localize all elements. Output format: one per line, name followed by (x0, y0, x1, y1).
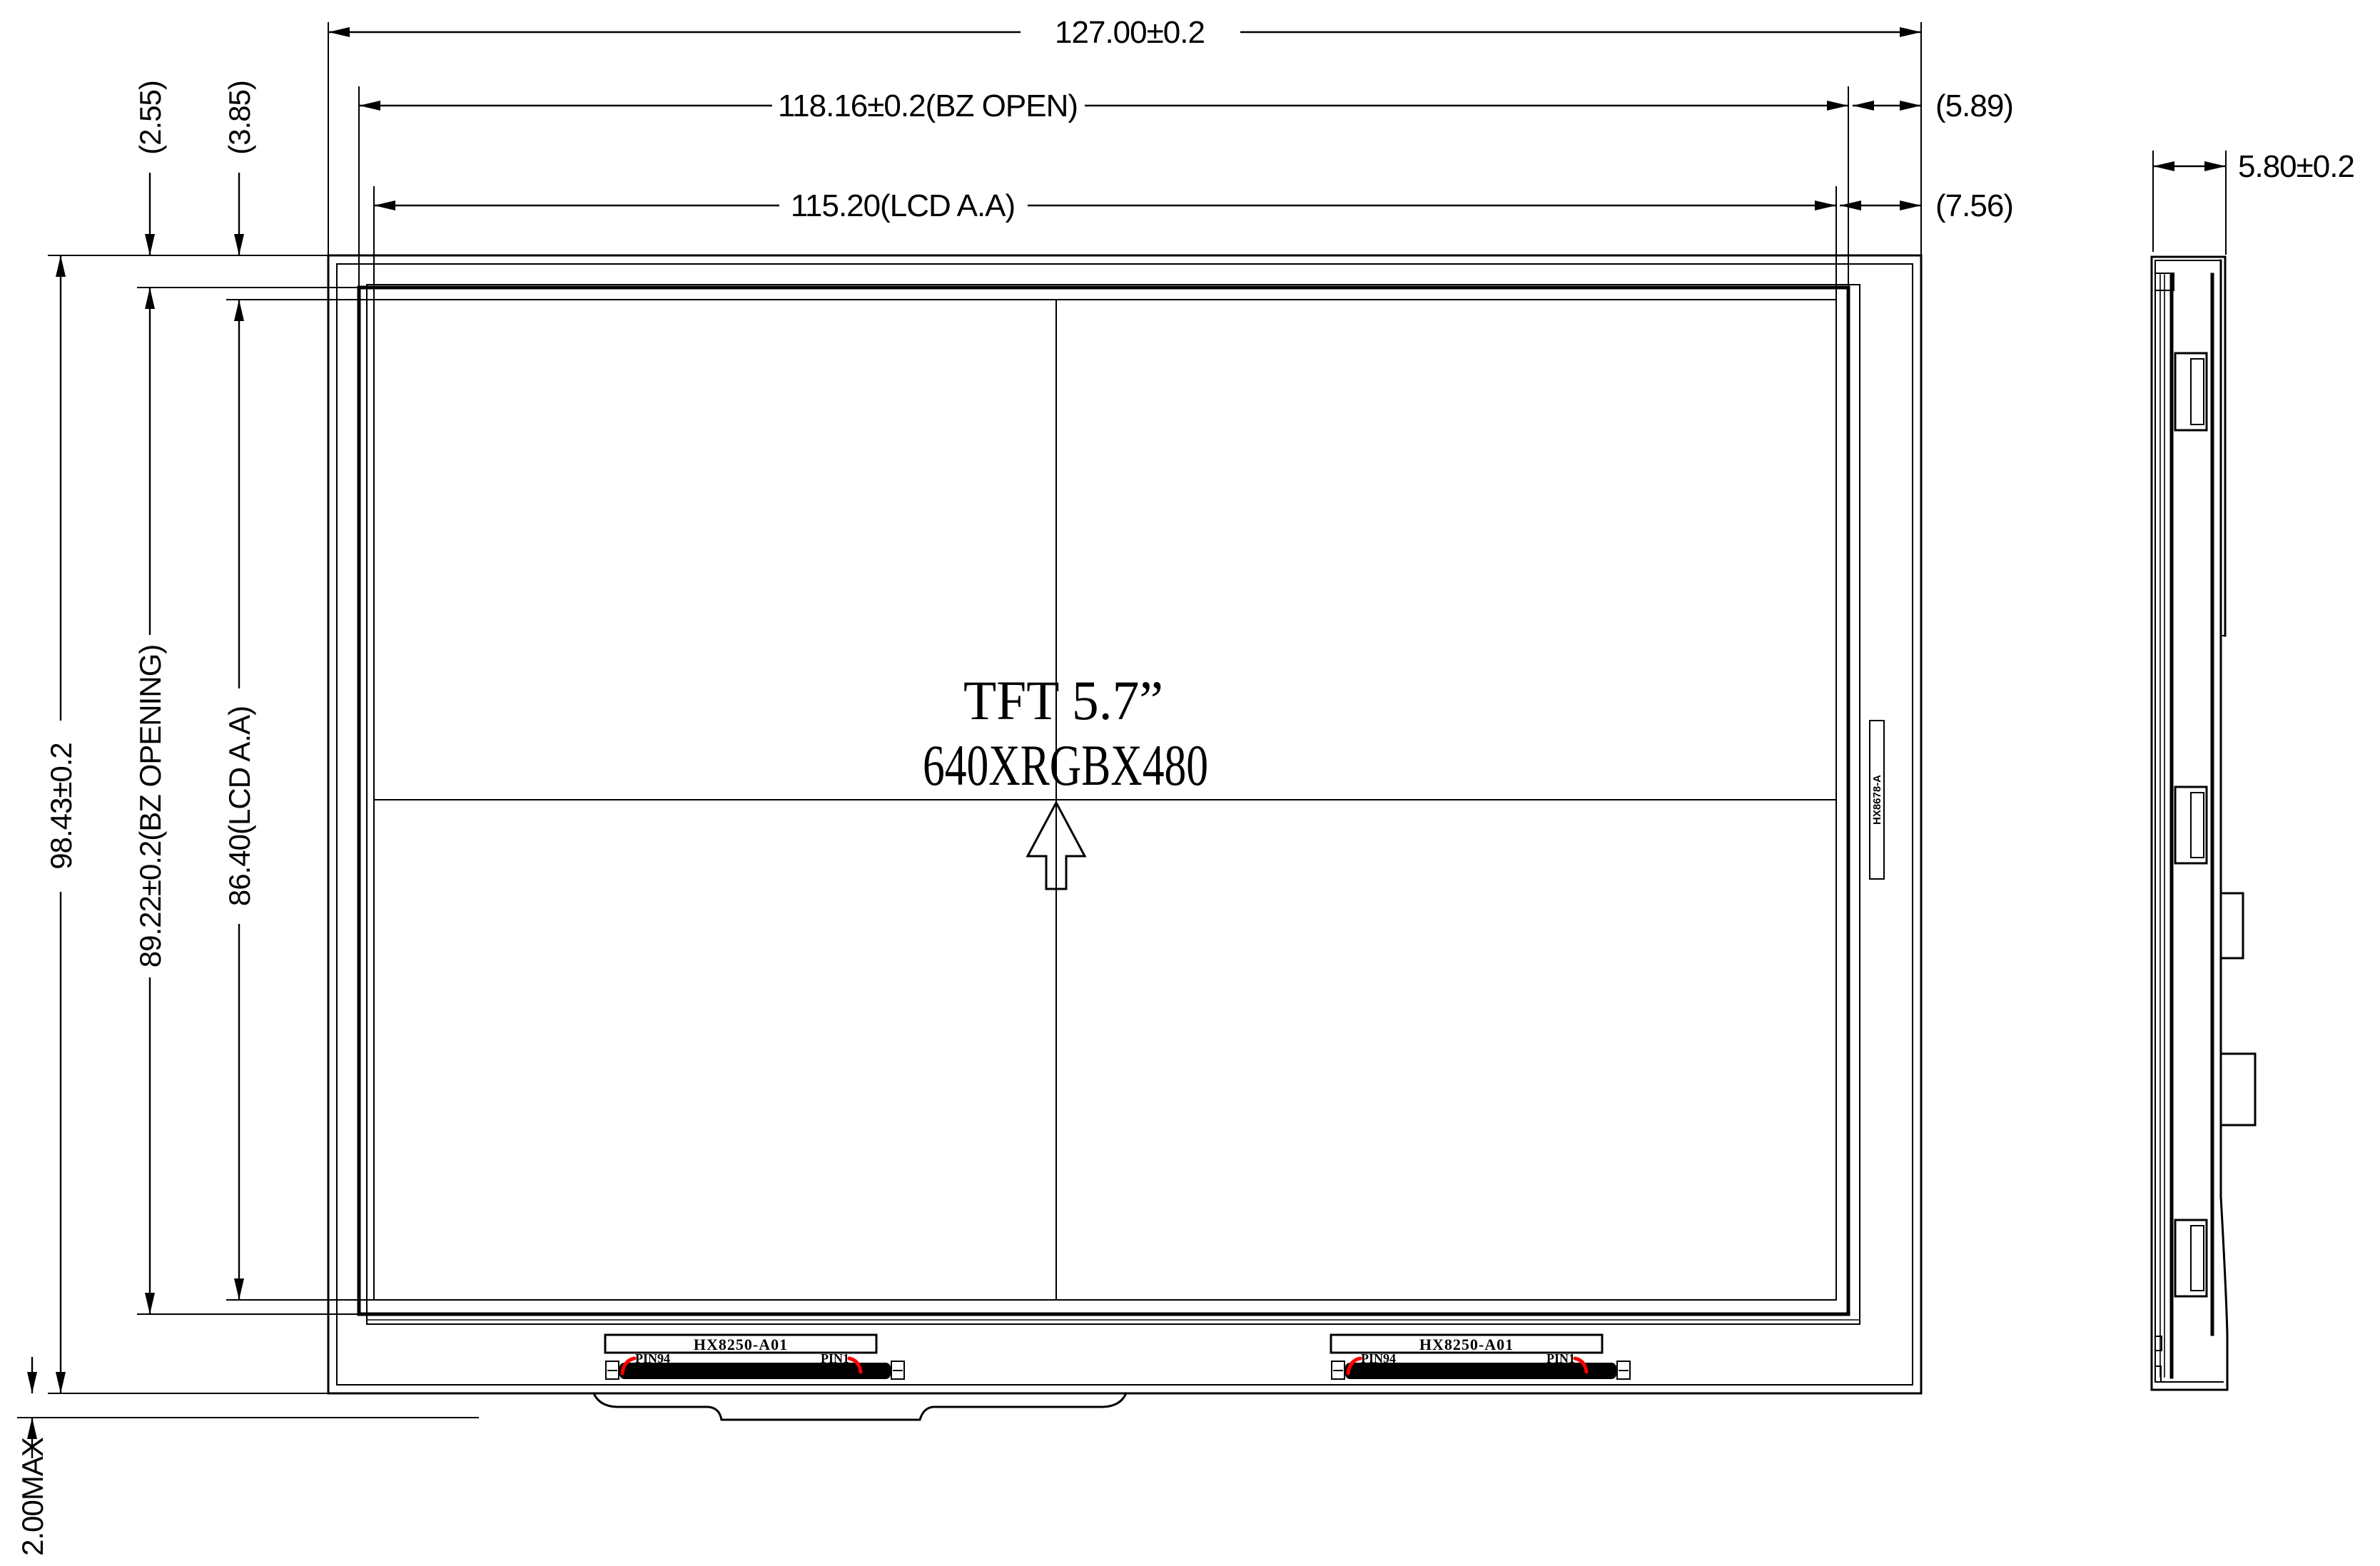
bezel-outer-outline (328, 255, 1921, 1393)
dimension-overall-height: 98.43±0.2 (44, 255, 78, 1393)
dimension-thickness: 5.80±0.2 (2153, 149, 2354, 254)
dimension-overall-width: 127.00±0.2 (328, 15, 1921, 254)
thickness-value: 5.80±0.2 (2238, 149, 2354, 184)
engineering-drawing: TFT 5.7” 640XRGBX480 HX8678-A HX8250-A01… (0, 0, 2380, 1566)
dimension-top-gap-bezel: (2.55) (133, 81, 167, 255)
top-gap-bezel-value: (2.55) (133, 81, 167, 155)
pin1-label: PIN1 (821, 1351, 849, 1366)
panel-resolution: 640XRGBX480 (923, 733, 1208, 798)
dimension-right-gap-bezel: (5.89) (1853, 88, 2013, 123)
lcd-aa-width-value: 115.20(LCD A.A) (791, 188, 1015, 223)
panel-model-text: HX8678-A (1871, 775, 1883, 825)
panel-model-label: HX8678-A (1870, 721, 1884, 879)
side-clip-top (2175, 353, 2207, 430)
side-view: 5.80±0.2 (2152, 149, 2354, 1390)
connector-left: HX8250-A01 PIN94 PIN1 (605, 1335, 904, 1379)
dimension-bezel-open-height: 89.22±0.2(BZ OPENING) (133, 288, 167, 1314)
connector-right: HX8250-A01 PIN94 PIN1 (1331, 1335, 1630, 1379)
overall-width-value: 127.00±0.2 (1055, 15, 1205, 50)
side-protrusion-upper (2221, 893, 2243, 958)
pin94-label: PIN94 (635, 1351, 670, 1366)
dimension-top-gap-aa: (3.85) (223, 81, 256, 255)
connector-contact-bar (620, 1363, 890, 1378)
front-view: TFT 5.7” 640XRGBX480 HX8678-A HX8250-A01… (328, 255, 1921, 1420)
lcd-glass-outline (367, 285, 1860, 1324)
bezel-opening-outline (359, 288, 1848, 1314)
side-protrusion-lower (2221, 1054, 2255, 1125)
dimension-lcd-aa-width: 115.20(LCD A.A) (374, 187, 1836, 298)
bezel-open-width-value: 118.16±0.2(BZ OPEN) (778, 88, 1078, 123)
bezel-open-height-value: 89.22±0.2(BZ OPENING) (133, 645, 167, 968)
dimension-right-gap-aa: (7.56) (1840, 188, 2013, 223)
side-clip-bottom (2175, 1220, 2207, 1296)
right-gap-bezel-value: (5.89) (1935, 88, 2013, 123)
pin94-label: PIN94 (1361, 1351, 1396, 1366)
overall-height-value: 98.43±0.2 (44, 743, 78, 870)
connector-model-text: HX8250-A01 (1419, 1336, 1514, 1353)
bezel-inner-outline (337, 264, 1913, 1385)
extension-lines-left (49, 255, 374, 1393)
connector-model-text: HX8250-A01 (694, 1336, 788, 1353)
lcd-aa-height-value: 86.40(LCD A.A) (223, 706, 256, 906)
fpc-protrusion-value: 2.00MAX (16, 1437, 49, 1556)
panel-title: TFT 5.7” (963, 669, 1163, 731)
dimension-fpc-protrusion: 2.00MAX (16, 1357, 478, 1556)
fpc-tail-outline (594, 1393, 1126, 1420)
side-fpc-bend (2221, 1196, 2227, 1390)
right-gap-aa-value: (7.56) (1935, 188, 2013, 223)
dimension-lcd-aa-height: 86.40(LCD A.A) (223, 300, 256, 1300)
top-gap-aa-value: (3.85) (223, 81, 256, 155)
side-clip-middle (2175, 787, 2207, 863)
pin1-label: PIN1 (1546, 1351, 1575, 1366)
connector-contact-bar (1346, 1363, 1616, 1378)
